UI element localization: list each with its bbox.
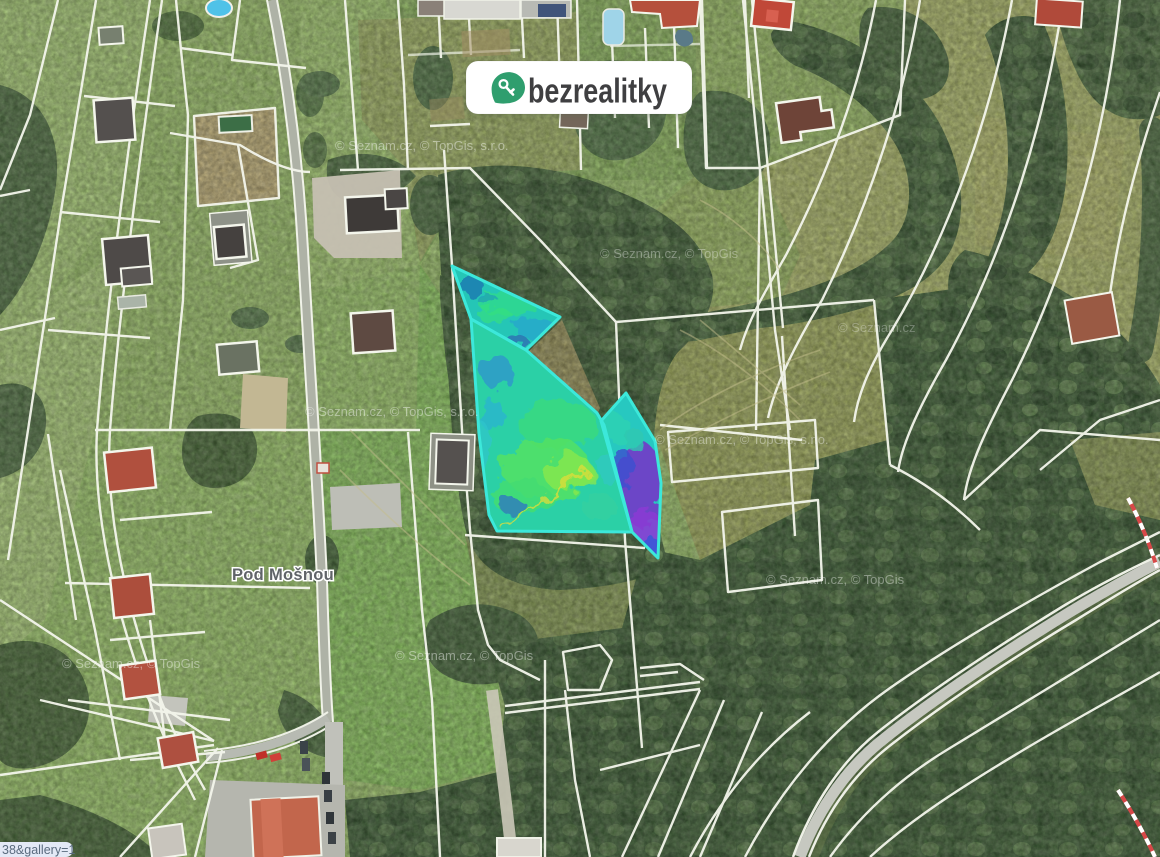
- svg-text:© Seznam.cz, © TopGis: © Seznam.cz, © TopGis: [766, 572, 905, 587]
- svg-text:bezrealitky: bezrealitky: [528, 73, 667, 111]
- svg-text:© Seznam.cz, © TopGis, s.r.o.: © Seznam.cz, © TopGis, s.r.o.: [655, 432, 829, 447]
- svg-text:38&gallery=1: 38&gallery=1: [2, 843, 75, 857]
- svg-text:© Seznam.cz, © TopGis, s.r.o.: © Seznam.cz, © TopGis, s.r.o.: [305, 404, 479, 419]
- svg-text:Pod Mošnou: Pod Mošnou: [232, 566, 334, 584]
- svg-text:© Seznam.cz, © TopGis, s.r.o.: © Seznam.cz, © TopGis, s.r.o.: [335, 138, 509, 153]
- svg-text:© Seznam.cz: © Seznam.cz: [838, 320, 916, 335]
- svg-text:© Seznam.cz, © TopGis: © Seznam.cz, © TopGis: [600, 246, 739, 261]
- svg-text:© Seznam.cz, © TopGis: © Seznam.cz, © TopGis: [62, 656, 201, 671]
- svg-text:© Seznam.cz, © TopGis: © Seznam.cz, © TopGis: [395, 648, 534, 663]
